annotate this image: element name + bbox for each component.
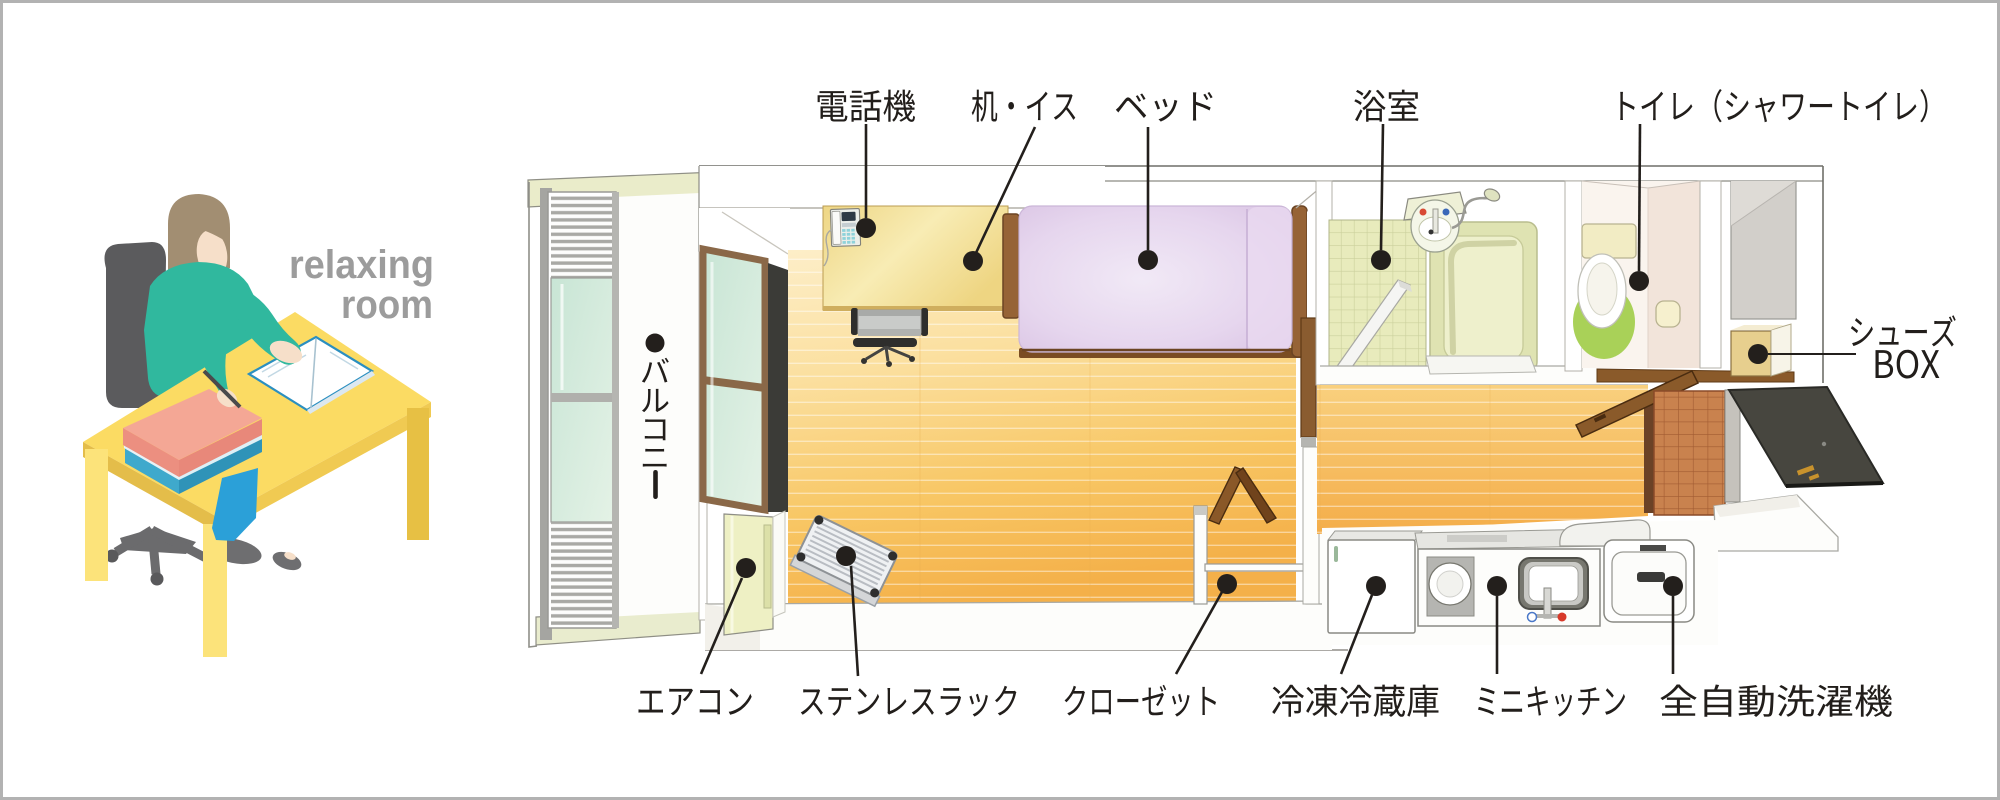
svg-text:room: room (341, 283, 433, 327)
svg-text:relaxing: relaxing (289, 243, 434, 287)
